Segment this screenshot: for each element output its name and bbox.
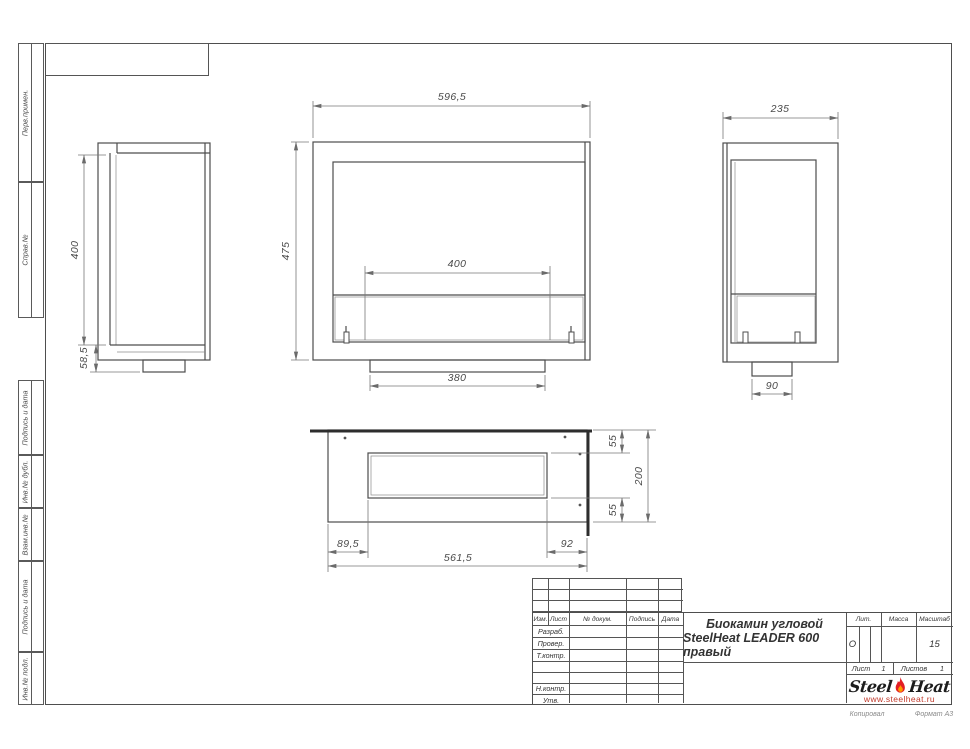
margin-box-label: Подпись и дата (21, 390, 30, 445)
margin-box-label: Перв.примен. (21, 89, 30, 135)
footer-format: Формат А3 (905, 711, 963, 718)
grid-line (626, 613, 627, 703)
margin-box-label: Справ.№ (21, 234, 30, 265)
scale-value: 15 (916, 626, 953, 662)
col-list: Лист (548, 613, 569, 625)
margin-box-divider (31, 183, 32, 317)
margin-box-divider (31, 562, 32, 651)
doc-title: Биокамин угловой SteelHeat LEADER 600 пр… (683, 613, 846, 662)
logo-word-heat: Heat (908, 677, 951, 696)
margin-box-divider (31, 653, 32, 704)
scale-label: Масштаб (916, 613, 953, 626)
grid-line (569, 579, 570, 613)
grid-line (533, 589, 683, 590)
grid-line (569, 613, 570, 703)
sheet-value: 1 (876, 662, 891, 674)
margin-box-label: Инв.№ подл. (21, 657, 30, 700)
role-nkontr: Н.контр. (533, 683, 569, 694)
margin-box-divider (31, 44, 32, 181)
margin-box-podpis-data-2: Подпись и дата (18, 561, 44, 652)
margin-box-label: Подпись и дата (21, 579, 30, 634)
margin-box-inv-podl: Инв.№ подл. (18, 652, 44, 705)
col-sign: Подпись (626, 613, 658, 625)
mass-label: Масса (881, 613, 916, 626)
grid-line (533, 661, 683, 662)
margin-box-sprav-no: Справ.№ (18, 182, 44, 318)
col-izm: Изм. (533, 613, 548, 625)
footer-kopiroval: Копировал (832, 711, 902, 718)
grid-line (548, 579, 549, 613)
role-tkontr: Т.контр. (533, 649, 569, 661)
margin-box-podpis-data-1: Подпись и дата (18, 380, 44, 455)
grid-line (893, 662, 894, 674)
logo-word-steel: Steel (848, 677, 893, 696)
doc-title-line2: SteelHeat LEADER 600 правый (683, 631, 846, 659)
role-razrab: Разраб. (533, 625, 569, 637)
margin-box-label: Инв.№ дубл. (21, 460, 30, 503)
corner-stamp-box (45, 43, 209, 76)
steelheat-logo: Steel Heat www.steelheat.ru (846, 674, 953, 706)
margin-box-label: Взам.инв.№ (21, 514, 30, 555)
title-block-main: Изм. Лист № докум. Подпись Дата Разраб. … (532, 612, 952, 705)
sheets-label: Листов (895, 662, 933, 674)
margin-box-divider (31, 509, 32, 560)
lit-value: О (846, 626, 859, 662)
lit-label: Лит. (846, 613, 881, 626)
grid-line (658, 579, 659, 613)
sheets-value: 1 (933, 662, 951, 674)
drawing-sheet: 400 58,5 596,5 475 4 (0, 0, 970, 749)
grid-line (533, 600, 683, 601)
doc-title-line1: Биокамин угловой (706, 617, 823, 631)
grid-line (533, 672, 683, 673)
grid-line (626, 579, 627, 613)
margin-box-divider (31, 456, 32, 507)
margin-box-divider (31, 381, 32, 454)
margin-box-perv-primen: Перв.примен. (18, 43, 44, 182)
col-date: Дата (658, 613, 683, 625)
grid-line (870, 626, 871, 662)
role-utv: Утв. (533, 694, 569, 706)
grid-line (683, 662, 846, 663)
title-block: Изм. Лист № докум. Подпись Дата Разраб. … (532, 578, 952, 705)
margin-box-inv-dubl: Инв.№ дубл. (18, 455, 44, 508)
title-block-change-rows (532, 578, 682, 612)
sheet-label: Лист (846, 662, 876, 674)
role-prover: Провер. (533, 637, 569, 649)
grid-line (859, 626, 860, 662)
margin-box-vzam-inv: Взам.инв.№ (18, 508, 44, 561)
grid-line (658, 613, 659, 703)
col-doc: № докум. (569, 613, 626, 625)
